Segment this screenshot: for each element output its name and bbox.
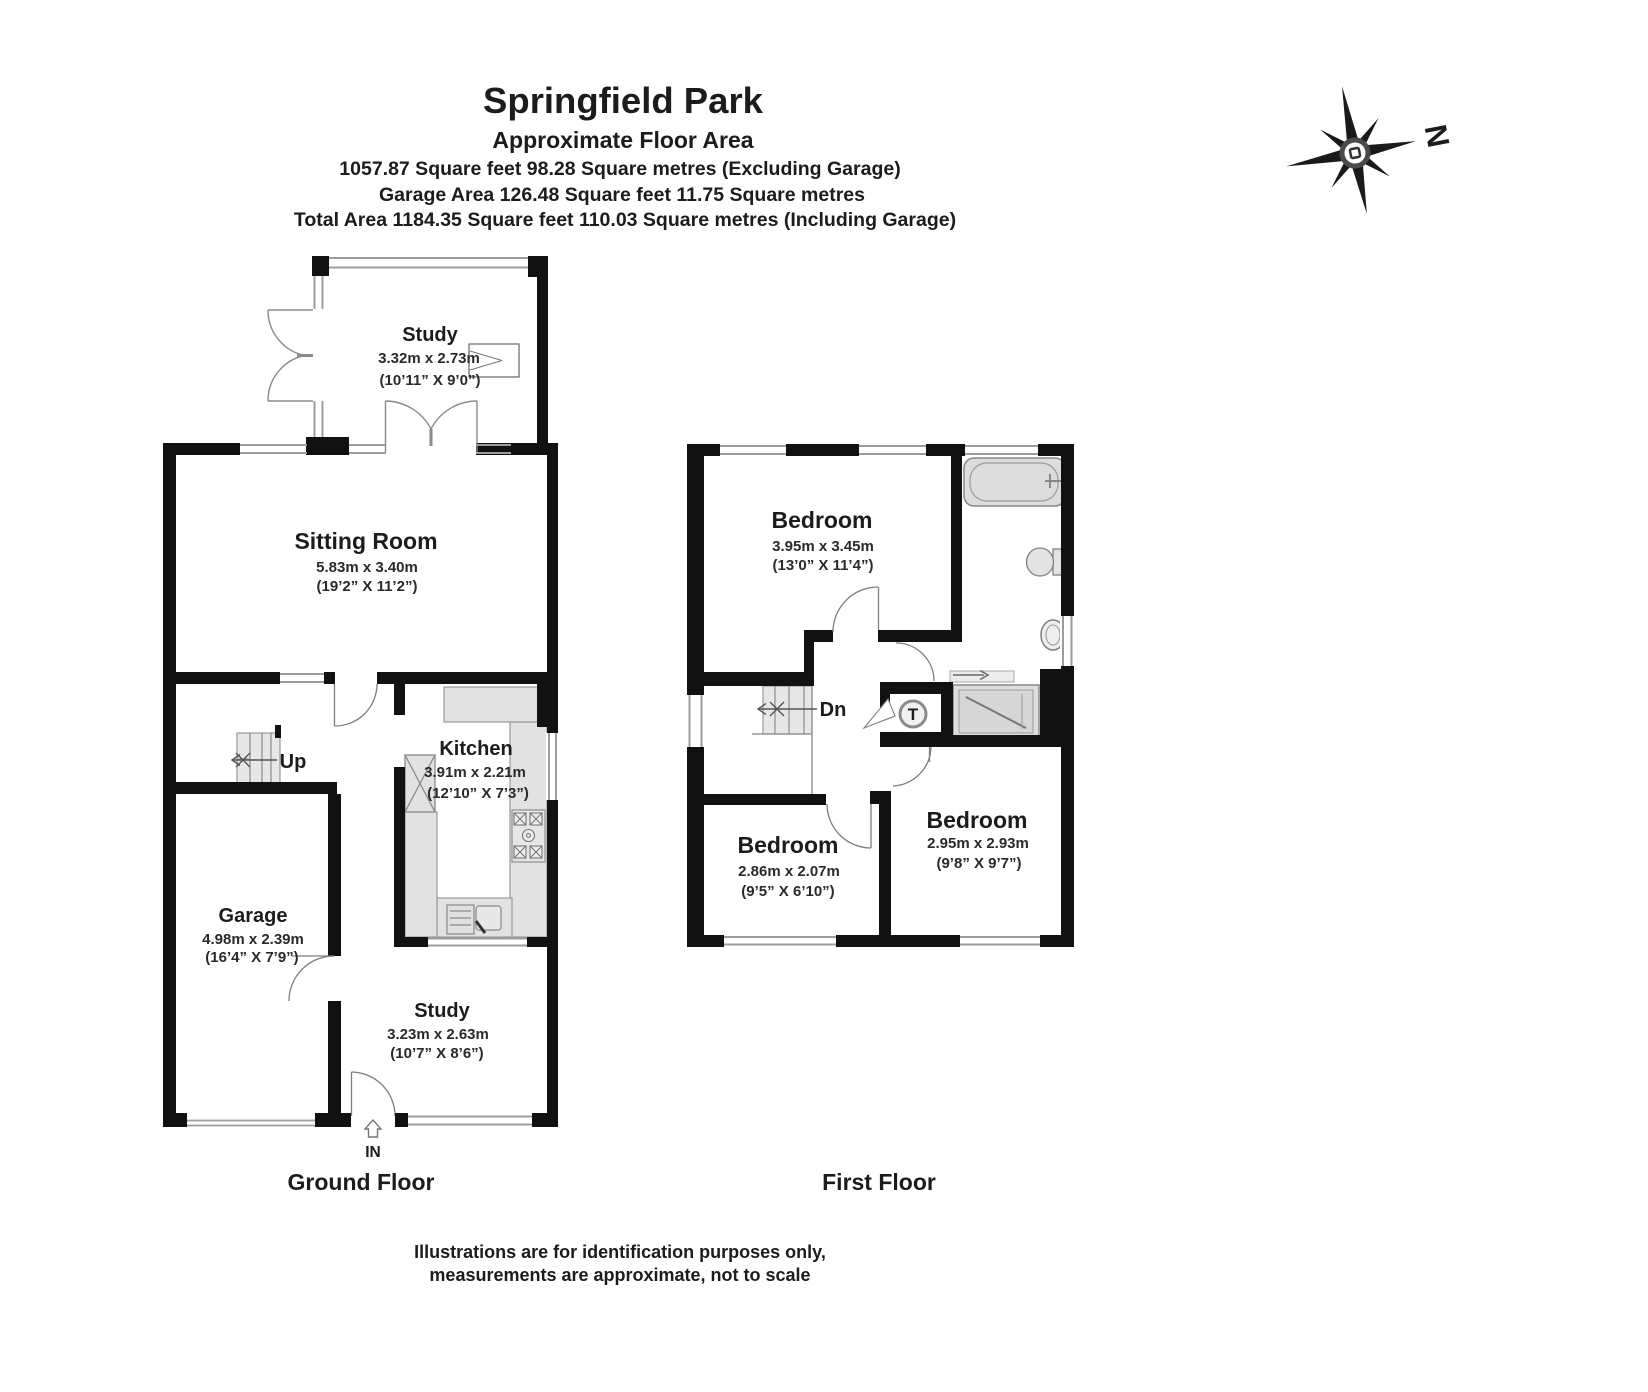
svg-text:2.95m x 2.93m: 2.95m x 2.93m — [927, 835, 1029, 852]
svg-text:Approximate Floor Area: Approximate Floor Area — [492, 127, 753, 153]
svg-text:(10’7” X 8’6”): (10’7” X 8’6”) — [390, 1045, 483, 1062]
svg-text:Kitchen: Kitchen — [439, 738, 512, 760]
svg-text:1057.87 Square feet 98.28 Squa: 1057.87 Square feet 98.28 Square metres … — [339, 158, 900, 180]
svg-text:4.98m x 2.39m: 4.98m x 2.39m — [202, 931, 304, 948]
svg-text:Bedroom: Bedroom — [772, 507, 873, 533]
svg-text:3.95m x 3.45m: 3.95m x 3.45m — [772, 538, 874, 555]
svg-text:Study: Study — [414, 1000, 470, 1022]
svg-text:Bedroom: Bedroom — [927, 807, 1028, 833]
svg-text:3.91m x 2.21m: 3.91m x 2.21m — [424, 764, 526, 781]
svg-text:(9’8” X 9’7”): (9’8” X 9’7”) — [936, 855, 1021, 872]
svg-text:Ground Floor: Ground Floor — [288, 1169, 435, 1195]
svg-text:Up: Up — [280, 751, 307, 773]
svg-text:Illustrations are for identifi: Illustrations are for identification pur… — [414, 1242, 826, 1262]
svg-text:5.83m x 3.40m: 5.83m x 3.40m — [316, 559, 418, 576]
svg-text:3.23m x 2.63m: 3.23m x 2.63m — [387, 1026, 489, 1043]
svg-text:Bedroom: Bedroom — [738, 832, 839, 858]
svg-text:Garage: Garage — [219, 905, 288, 927]
svg-text:Dn: Dn — [820, 699, 847, 721]
svg-text:T: T — [908, 705, 919, 724]
svg-text:3.32m x 2.73m: 3.32m x 2.73m — [378, 350, 480, 367]
svg-text:(13’0” X 11’4”): (13’0” X 11’4”) — [773, 557, 874, 574]
svg-text:Study: Study — [402, 324, 458, 346]
svg-text:Sitting Room: Sitting Room — [294, 528, 437, 554]
svg-text:IN: IN — [365, 1144, 381, 1161]
svg-text:(16’4” X 7’9”): (16’4” X 7’9”) — [205, 949, 298, 966]
svg-text:(19’2” X 11’2”): (19’2” X 11’2”) — [317, 578, 418, 595]
svg-text:Springfield Park: Springfield Park — [483, 80, 764, 121]
svg-text:2.86m x 2.07m: 2.86m x 2.07m — [738, 863, 840, 880]
svg-text:Garage Area 126.48 Square feet: Garage Area 126.48 Square feet 11.75 Squ… — [379, 184, 865, 206]
svg-text:First Floor: First Floor — [822, 1169, 936, 1195]
svg-text:(10’11” X 9’0”): (10’11” X 9’0”) — [380, 372, 481, 389]
svg-text:measurements are approximate,: measurements are approximate, not to sca… — [429, 1265, 810, 1285]
svg-text:(12’10” X 7’3”): (12’10” X 7’3”) — [427, 785, 529, 802]
svg-text:(9’5” X 6’10”): (9’5” X 6’10”) — [741, 883, 834, 900]
svg-text:Total Area 1184.35 Square feet: Total Area 1184.35 Square feet 110.03 Sq… — [294, 209, 956, 231]
